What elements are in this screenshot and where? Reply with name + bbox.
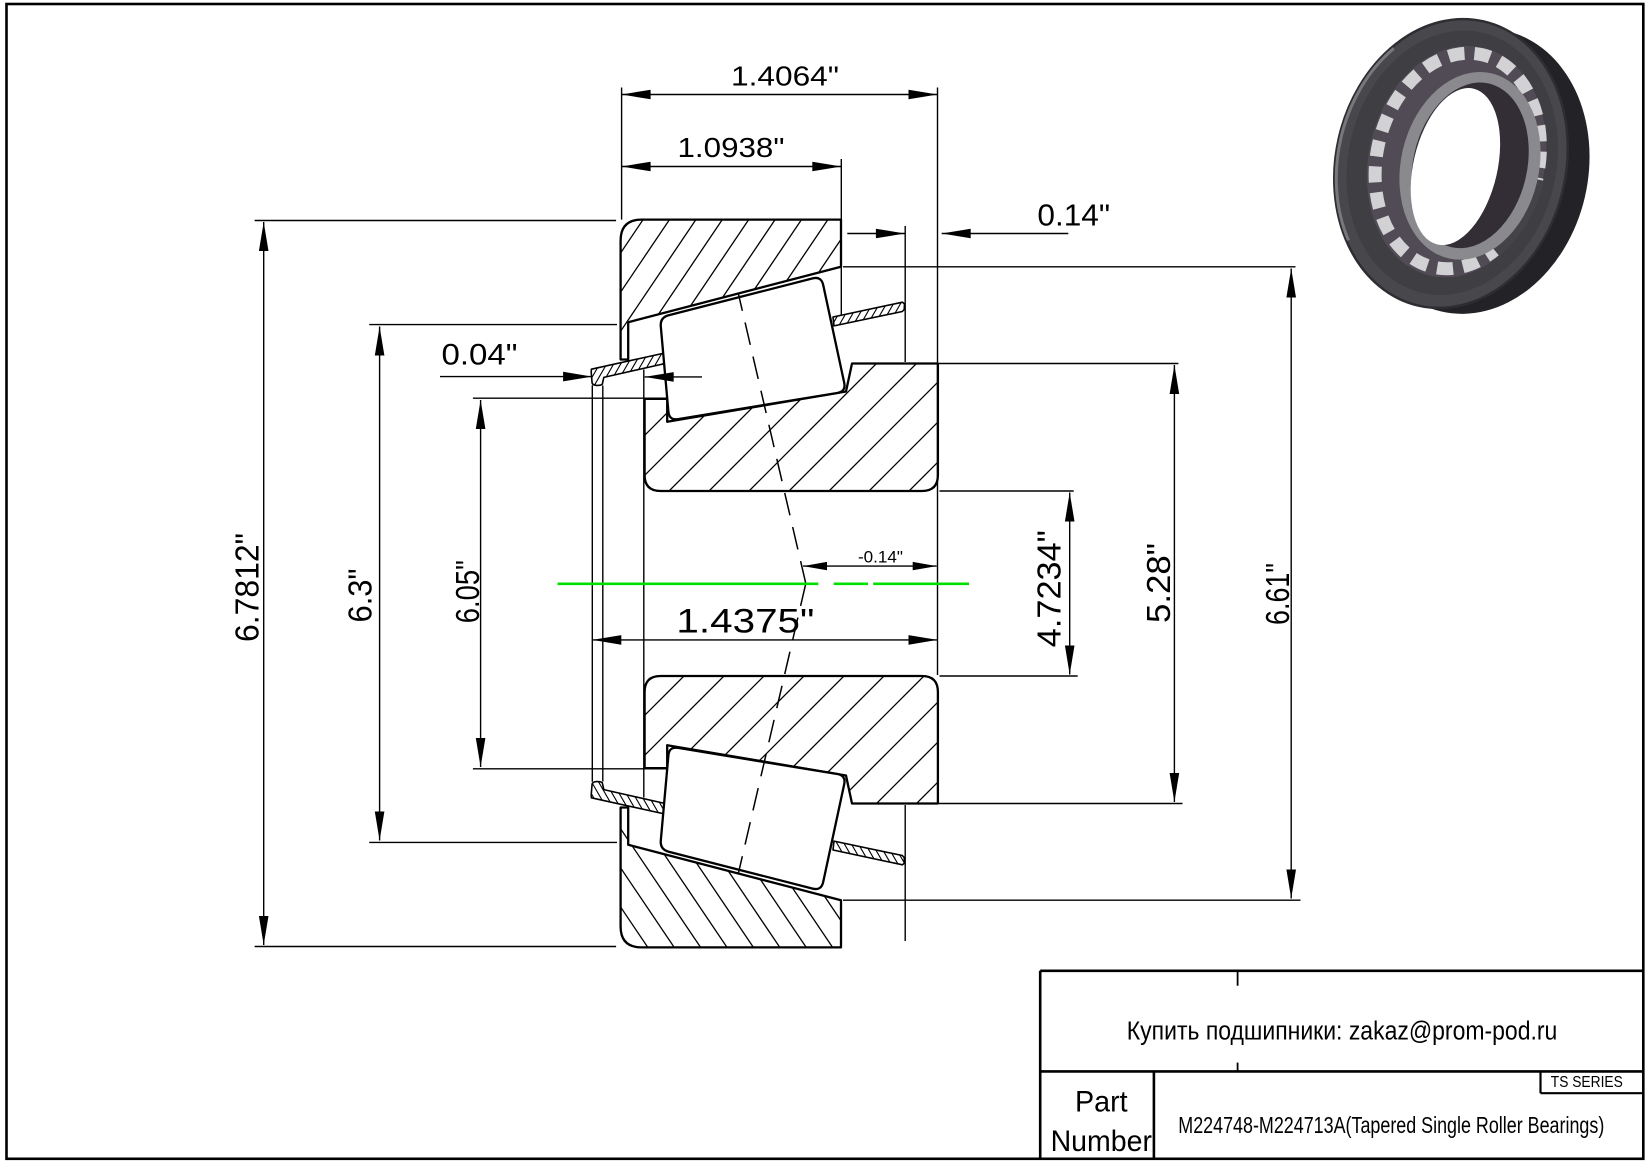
svg-text:6.7812": 6.7812"	[228, 533, 265, 642]
svg-text:0.14": 0.14"	[1037, 199, 1110, 233]
svg-text:M224748-M224713A(Tapered Singl: M224748-M224713A(Tapered Single Roller B…	[1178, 1112, 1604, 1138]
svg-text:4.7234": 4.7234"	[1031, 530, 1068, 647]
svg-text:1.4375": 1.4375"	[676, 602, 814, 640]
svg-text:-0.14": -0.14"	[858, 548, 903, 567]
svg-text:Купить подшипники: zakaz@prom-: Купить подшипники: zakaz@prom-pod.ru	[1127, 1016, 1558, 1046]
svg-text:6.61": 6.61"	[1259, 563, 1296, 625]
svg-text:6.05": 6.05"	[449, 560, 486, 623]
svg-text:1.0938": 1.0938"	[678, 132, 785, 163]
svg-text:5.28": 5.28"	[1140, 543, 1177, 623]
svg-text:1.4064": 1.4064"	[731, 60, 839, 91]
svg-text:Part: Part	[1075, 1085, 1128, 1118]
svg-text:TS SERIES: TS SERIES	[1551, 1073, 1623, 1091]
svg-text:6.3": 6.3"	[342, 569, 379, 623]
svg-text:0.04": 0.04"	[442, 339, 518, 372]
svg-text:Number: Number	[1051, 1125, 1153, 1158]
